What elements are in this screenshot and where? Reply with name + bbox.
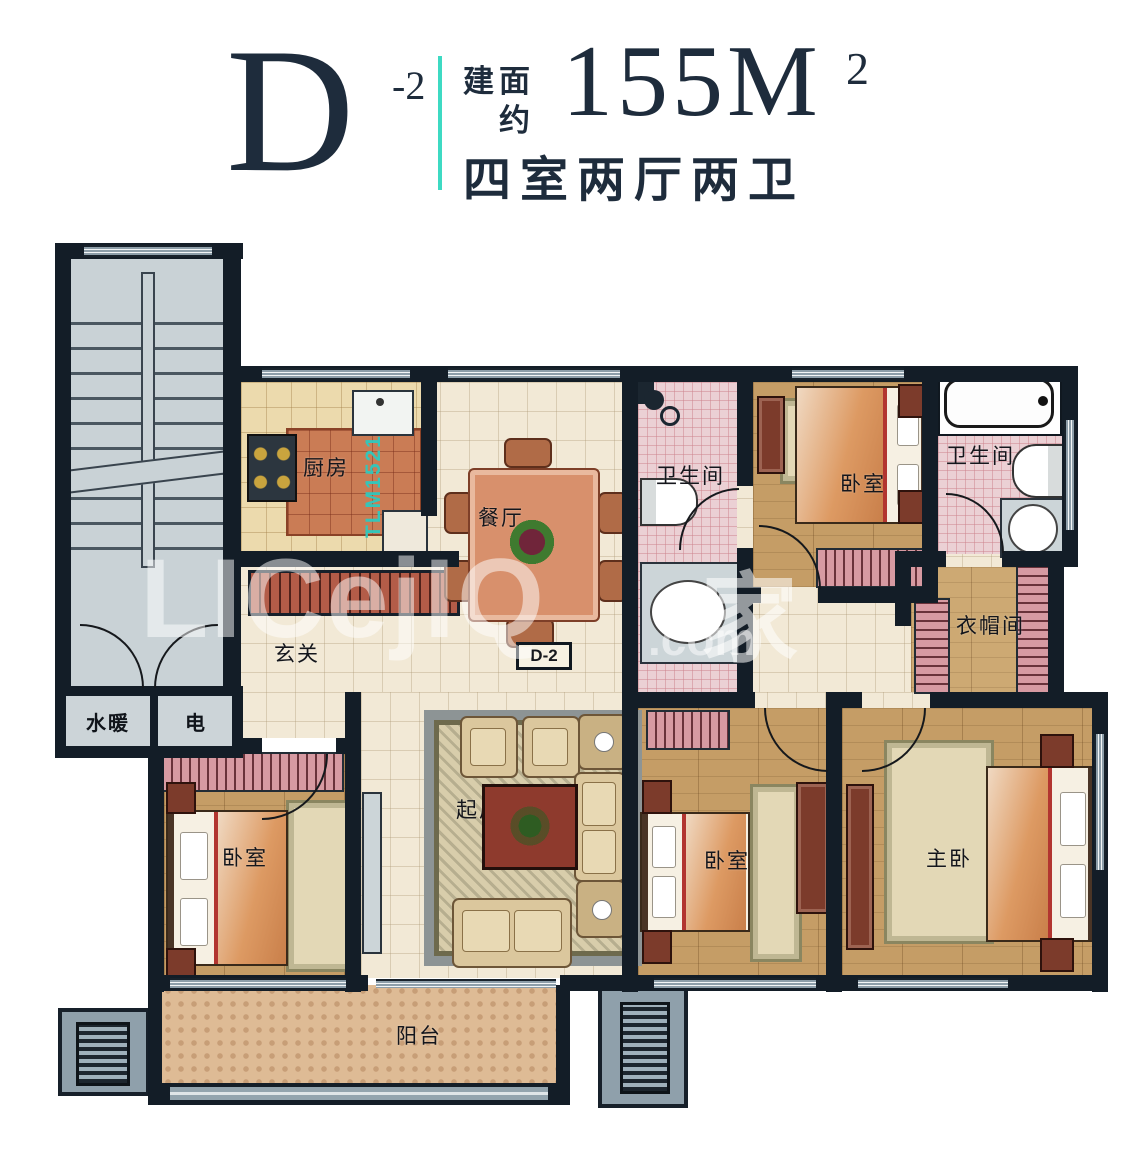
bed-blanket xyxy=(988,768,1048,940)
dining-chair xyxy=(504,438,552,468)
wall xyxy=(223,243,241,758)
bed-pillow xyxy=(1060,792,1086,846)
wall xyxy=(826,692,842,992)
unit-letter: D xyxy=(226,30,355,190)
wall xyxy=(148,1083,170,1105)
balcony-door-sill xyxy=(376,979,556,988)
wall xyxy=(55,243,71,758)
shoe-cabinet xyxy=(248,570,460,616)
cushion xyxy=(582,782,616,826)
cushion xyxy=(514,910,562,952)
sink-right xyxy=(1008,504,1058,554)
electric-shaft: 电 xyxy=(158,696,232,746)
ac-unit-icon xyxy=(76,1022,130,1086)
wall xyxy=(737,366,753,486)
coffee-table-plant xyxy=(507,803,553,849)
tv-stand xyxy=(362,792,382,954)
header-divider xyxy=(438,56,442,190)
armchair xyxy=(522,716,580,778)
ac-unit-icon xyxy=(620,1002,670,1094)
wall xyxy=(905,551,946,567)
bed-master xyxy=(986,766,1096,942)
area-prefix-bottom: 约 xyxy=(499,95,535,140)
unit-letter-sup: -2 xyxy=(392,62,425,109)
toilet-right xyxy=(1012,444,1064,498)
wall xyxy=(753,587,761,603)
wardrobe-bottom-center xyxy=(646,710,730,750)
armchair xyxy=(460,716,518,778)
lamp-icon xyxy=(592,900,612,920)
window xyxy=(448,368,620,380)
cushion xyxy=(582,830,616,874)
ac-platform-left xyxy=(58,1008,150,1096)
bed-pillow xyxy=(180,832,208,880)
area-value-sup: 2 xyxy=(846,42,869,95)
wall xyxy=(560,975,638,991)
shower-drain-icon xyxy=(660,406,680,426)
master-rug xyxy=(884,740,994,944)
bed-pillow xyxy=(652,826,676,868)
side-table xyxy=(576,880,626,938)
floor-plan-page: D -2 建面 约 155M 2 四室两厅两卫 水暖 电 餐厅 xyxy=(0,0,1125,1159)
window xyxy=(170,978,346,988)
loveseat xyxy=(452,898,572,968)
bed-headboard xyxy=(642,814,648,930)
side-table xyxy=(578,714,628,770)
room-label-foyer: 玄关 xyxy=(274,638,320,668)
bed-bottom-left xyxy=(166,810,288,966)
wall xyxy=(818,587,938,603)
window xyxy=(262,368,410,380)
wall xyxy=(622,692,638,992)
nightstand xyxy=(166,782,196,814)
dresser xyxy=(796,782,830,914)
bed-pillow xyxy=(1060,864,1086,918)
bedroom-bottom-left-rug xyxy=(286,800,354,972)
room-label-kitchen: 厨房 xyxy=(303,452,349,482)
wall xyxy=(930,692,1108,708)
wall xyxy=(548,1083,570,1105)
kitchen-faucet xyxy=(376,398,384,406)
coffee-table xyxy=(482,784,578,870)
bed-pillow xyxy=(180,898,208,946)
tub-faucet xyxy=(1038,396,1048,406)
bed-headboard xyxy=(168,812,174,964)
layout-subtitle: 四室两厅两卫 xyxy=(463,140,805,210)
dining-centerpiece-plant xyxy=(505,515,559,569)
wall xyxy=(622,366,638,692)
window xyxy=(792,368,904,380)
foyer-floor xyxy=(237,692,361,738)
stove-icon xyxy=(247,434,297,502)
water-heating-shaft: 水暖 xyxy=(66,696,150,746)
cushion xyxy=(462,910,510,952)
cloakroom-wardrobe-left xyxy=(914,598,950,694)
wall xyxy=(895,551,911,626)
window xyxy=(858,978,1008,988)
cushion xyxy=(470,728,506,766)
balcony-floor xyxy=(162,985,558,1085)
room-label-bedroom-bottom-left: 卧室 xyxy=(222,842,268,872)
nightstand xyxy=(642,930,672,964)
nightstand xyxy=(1040,938,1074,972)
bed-trim xyxy=(883,388,887,522)
wall xyxy=(922,366,938,603)
nightstand xyxy=(642,780,672,814)
sink-middle xyxy=(650,580,726,644)
window xyxy=(1064,420,1076,530)
bedroom-bottom-center-rug xyxy=(750,784,802,962)
watermark-code: TLM1521 xyxy=(362,408,386,538)
bed-pillow xyxy=(652,876,676,918)
unit-tag-box: D-2 xyxy=(516,642,572,670)
room-label-bath-middle: 卫生间 xyxy=(656,460,725,490)
wall xyxy=(421,366,437,516)
ac-platform-right xyxy=(598,982,688,1108)
lamp-icon xyxy=(594,732,614,752)
cushion xyxy=(532,728,568,766)
balcony-window-wall xyxy=(148,1083,570,1105)
wall xyxy=(556,985,570,1085)
dresser-master xyxy=(846,784,874,950)
bed-blanket xyxy=(218,812,286,964)
bed-blanket xyxy=(797,388,883,522)
nightstand xyxy=(1040,734,1074,768)
shower-head-icon xyxy=(644,390,664,410)
wall xyxy=(237,551,459,567)
window xyxy=(654,978,816,988)
room-label-master: 主卧 xyxy=(926,843,972,873)
area-value: 155M xyxy=(562,36,822,128)
cabinet-top-right-bedroom xyxy=(757,396,785,474)
wall xyxy=(737,548,753,708)
room-label-bedroom-bottom-center: 卧室 xyxy=(704,845,750,875)
window xyxy=(1094,734,1106,870)
wall xyxy=(148,738,164,992)
window xyxy=(84,245,212,257)
sofa xyxy=(574,772,626,882)
room-label-bath-right: 卫生间 xyxy=(946,440,1015,470)
wall xyxy=(345,692,361,992)
wall xyxy=(1048,551,1064,706)
fridge xyxy=(382,510,428,556)
room-label-bedroom-top-right: 卧室 xyxy=(840,468,886,498)
wall xyxy=(622,692,755,708)
room-label-cloakroom: 衣帽间 xyxy=(956,610,1025,640)
room-label-balcony: 阳台 xyxy=(396,1020,442,1050)
bed-trim xyxy=(1048,768,1052,940)
stair-rail xyxy=(141,272,155,568)
